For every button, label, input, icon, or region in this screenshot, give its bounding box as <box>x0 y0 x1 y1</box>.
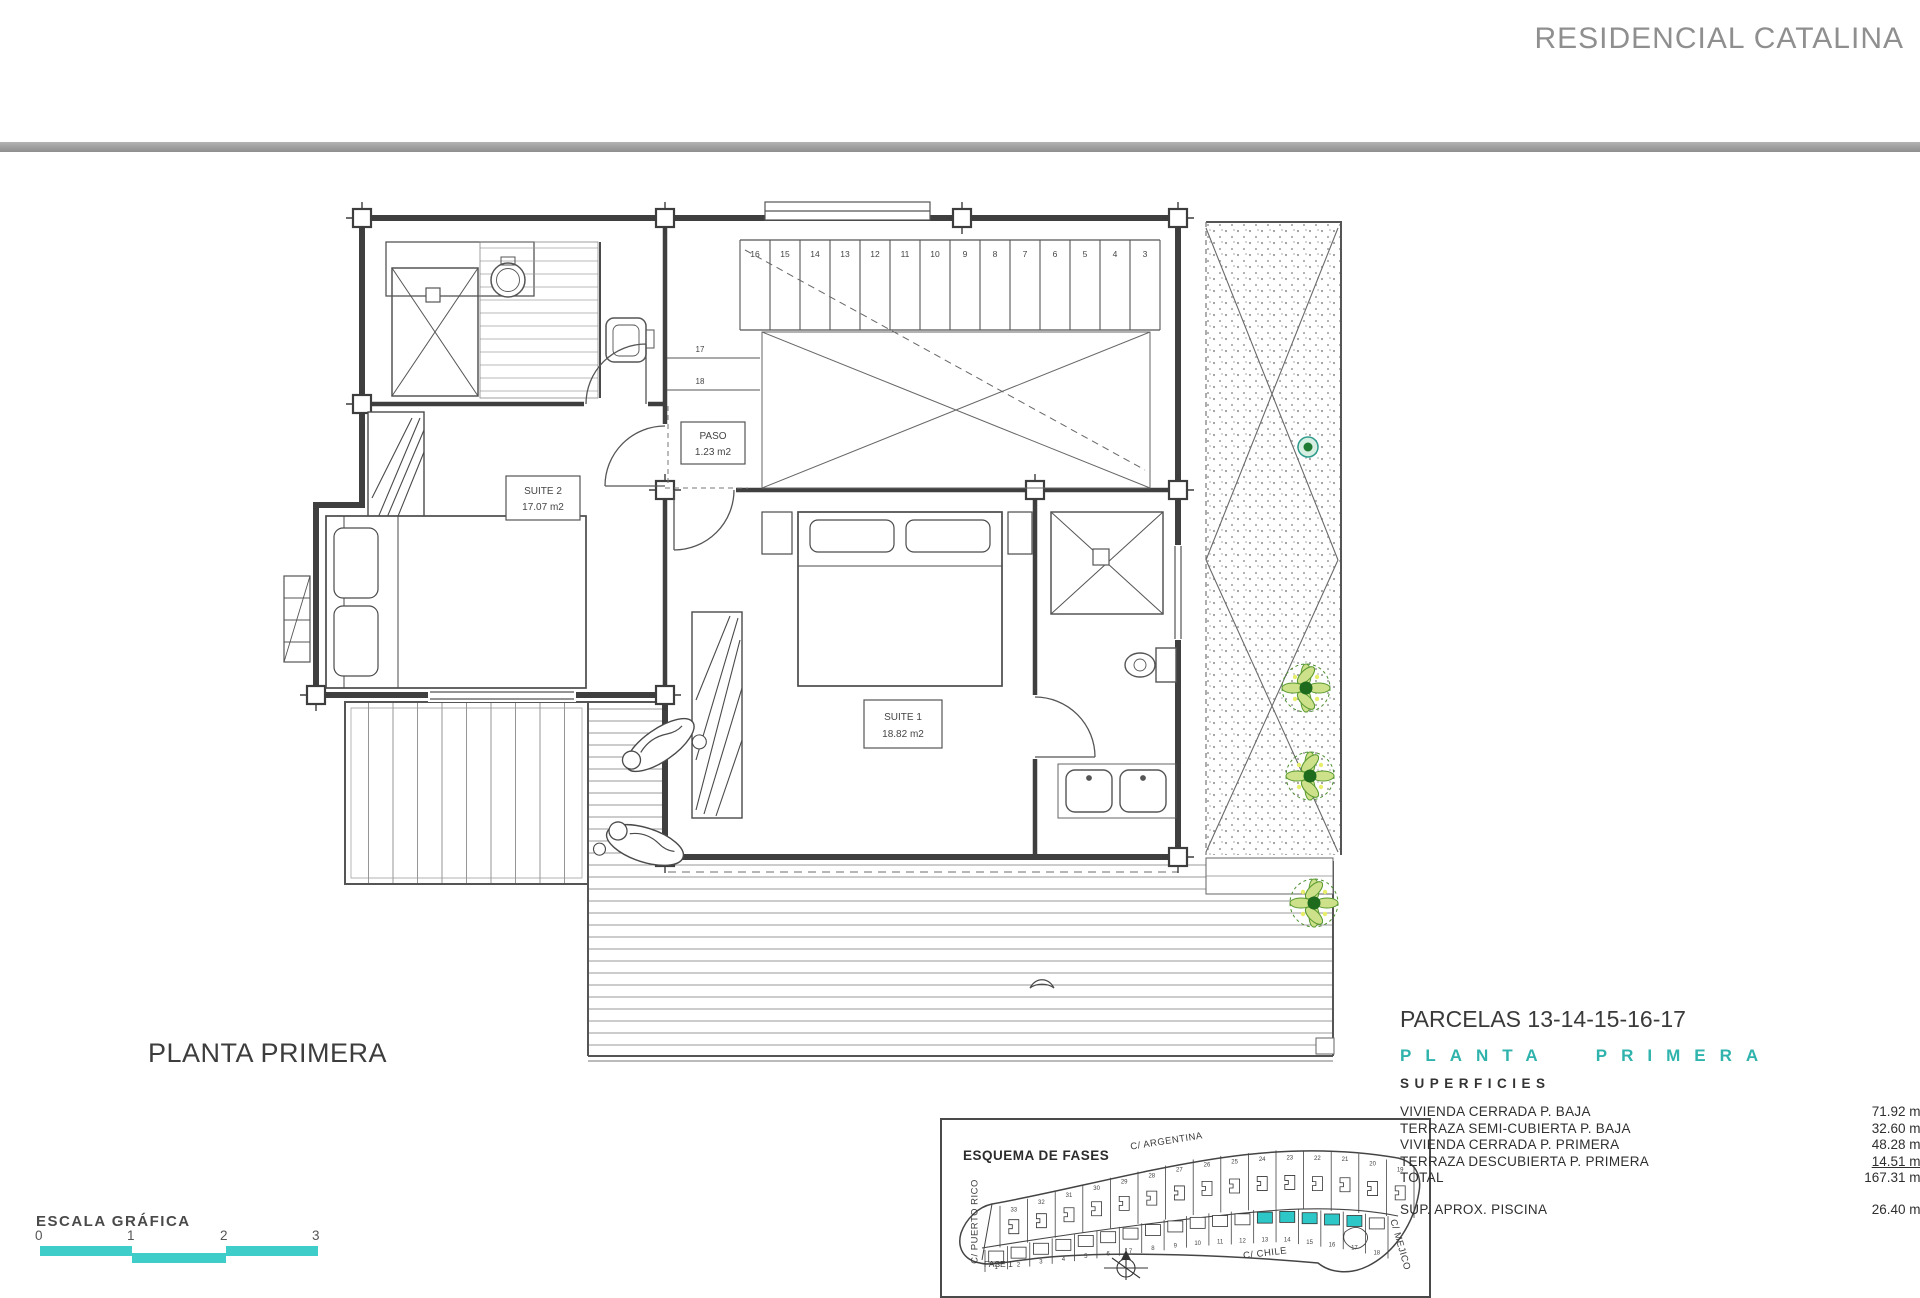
scale-tick: 1 <box>127 1228 135 1243</box>
parcels-title: PARCELAS 13-14-15-16-17 <box>1400 1006 1686 1033</box>
stair-step-number: 8 <box>993 249 998 259</box>
superficies-title: SUPERFICIES <box>1400 1076 1551 1091</box>
suite1-label: SUITE 1 18.82 m2 <box>864 700 942 748</box>
gravel-garden <box>1206 222 1341 855</box>
paso-label: PASO 1.23 m2 <box>681 422 745 464</box>
scale-tick: 0 <box>35 1228 43 1243</box>
scale-tick: 3 <box>312 1228 320 1243</box>
stair-step-number: 9 <box>963 249 968 259</box>
table-row: TOTAL167.31 m2 <box>1400 1170 1920 1187</box>
table-row: VIVIENDA CERRADA P. PRIMERA48.28 m2 <box>1400 1137 1920 1154</box>
svg-text:SUITE 1: SUITE 1 <box>884 712 922 723</box>
stair-step-number: 4 <box>1113 249 1118 259</box>
stair-step-number: 13 <box>840 249 850 259</box>
esquema-box <box>940 1118 1431 1298</box>
street-label-puerto-rico: C/ PUERTO RICO <box>970 1177 981 1267</box>
document-title: RESIDENCIAL CATALINA <box>1534 22 1904 56</box>
header-divider <box>0 142 1920 152</box>
floor-title: PLANTA PRIMERA <box>1400 1046 1772 1066</box>
superficies-table: VIVIENDA CERRADA P. BAJA71.92 m2TERRAZA … <box>1400 1104 1920 1219</box>
table-row: TERRAZA SEMI-CUBIERTA P. BAJA32.60 m2 <box>1400 1121 1920 1138</box>
plan-caption: PLANTA PRIMERA <box>148 1038 387 1069</box>
svg-text:PASO: PASO <box>699 431 726 442</box>
table-row: TERRAZA DESCUBIERTA P. PRIMERA14.51 m2 <box>1400 1154 1920 1171</box>
stair-step-number: 7 <box>1023 249 1028 259</box>
table-row: SUP. APROX. PISCINA26.40 m2 <box>1400 1202 1920 1219</box>
stair-step-number: 14 <box>810 249 820 259</box>
svg-text:1.23 m2: 1.23 m2 <box>695 447 732 458</box>
bathroom-main <box>386 242 654 398</box>
graphic-scale-bar <box>40 1246 318 1263</box>
exterior-stair <box>345 702 588 884</box>
suite2-label: SUITE 2 17.07 m2 <box>506 476 580 520</box>
scale-tick: 2 <box>220 1228 228 1243</box>
svg-text:17.07 m2: 17.07 m2 <box>522 502 564 513</box>
esquema-title: ESQUEMA DE FASES <box>963 1148 1109 1163</box>
scale-label: ESCALA GRÁFICA <box>36 1213 191 1230</box>
stair-step-number: 10 <box>930 249 940 259</box>
stair-step-number: 12 <box>870 249 880 259</box>
stair-step-number: 15 <box>780 249 790 259</box>
window-box <box>284 576 310 662</box>
phase-label: FASE 1 <box>984 1259 1013 1269</box>
floorplan-drawing: 161514131211109876543 17 18 <box>0 0 1920 1280</box>
stair-step-number: 6 <box>1053 249 1058 259</box>
table-row: VIVIENDA CERRADA P. BAJA71.92 m2 <box>1400 1104 1920 1121</box>
bathroom-ensuite <box>1051 512 1176 818</box>
svg-text:18.82 m2: 18.82 m2 <box>882 729 924 740</box>
stair-step-number: 3 <box>1143 249 1148 259</box>
svg-text:SUITE 2: SUITE 2 <box>524 486 562 497</box>
stair-step-17: 17 <box>696 345 705 354</box>
stair-step-number: 11 <box>901 249 910 259</box>
stair-step-number: 5 <box>1083 249 1088 259</box>
stair-step-18: 18 <box>696 377 705 386</box>
suite1-furniture <box>692 512 1032 818</box>
